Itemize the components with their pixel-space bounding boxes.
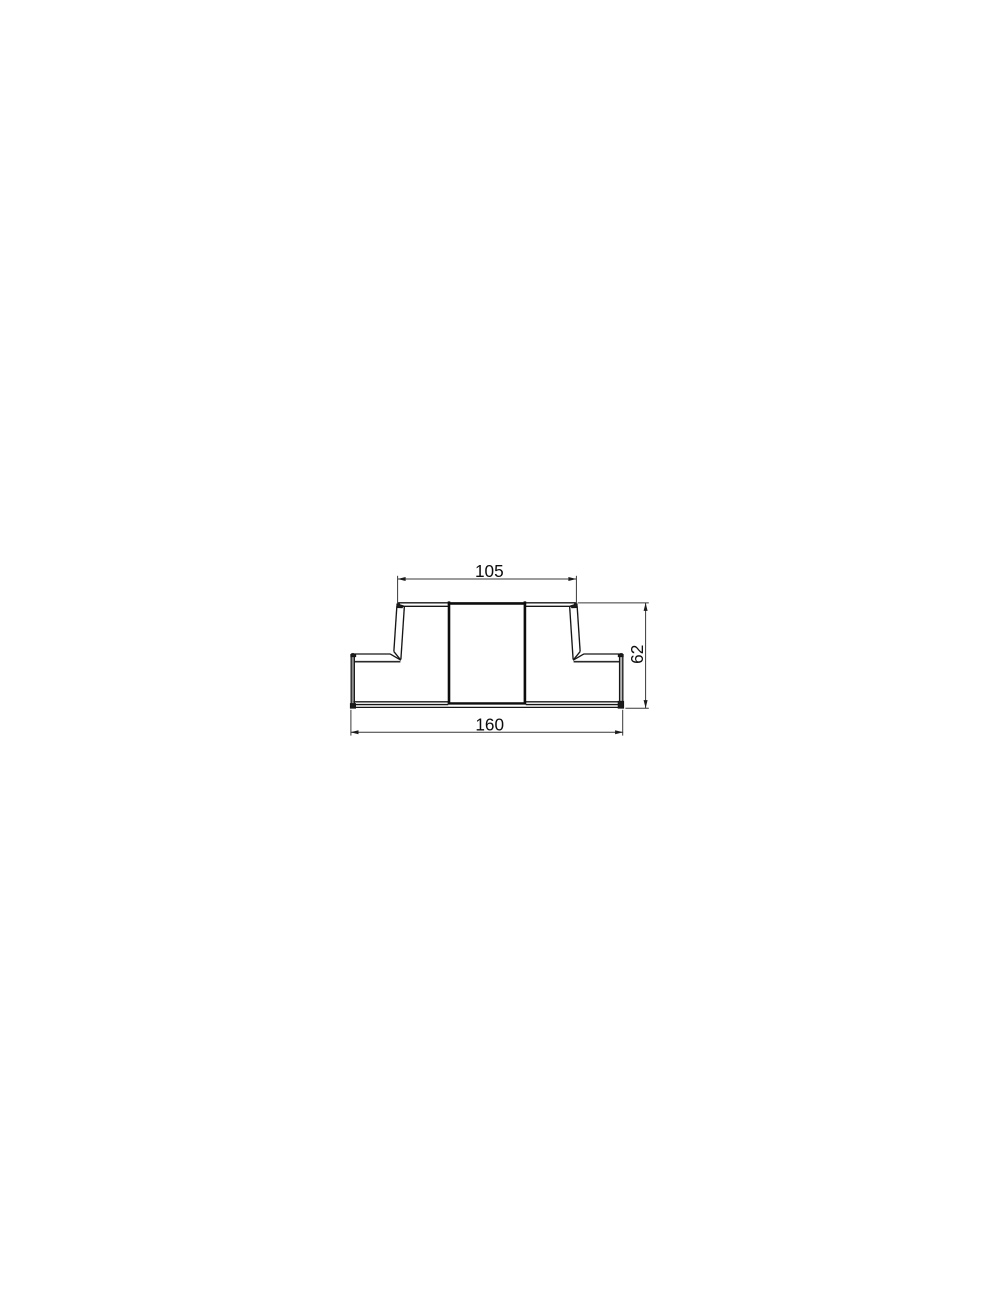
svg-text:62: 62 — [627, 645, 647, 664]
svg-text:160: 160 — [475, 714, 504, 734]
svg-text:105: 105 — [475, 561, 504, 581]
